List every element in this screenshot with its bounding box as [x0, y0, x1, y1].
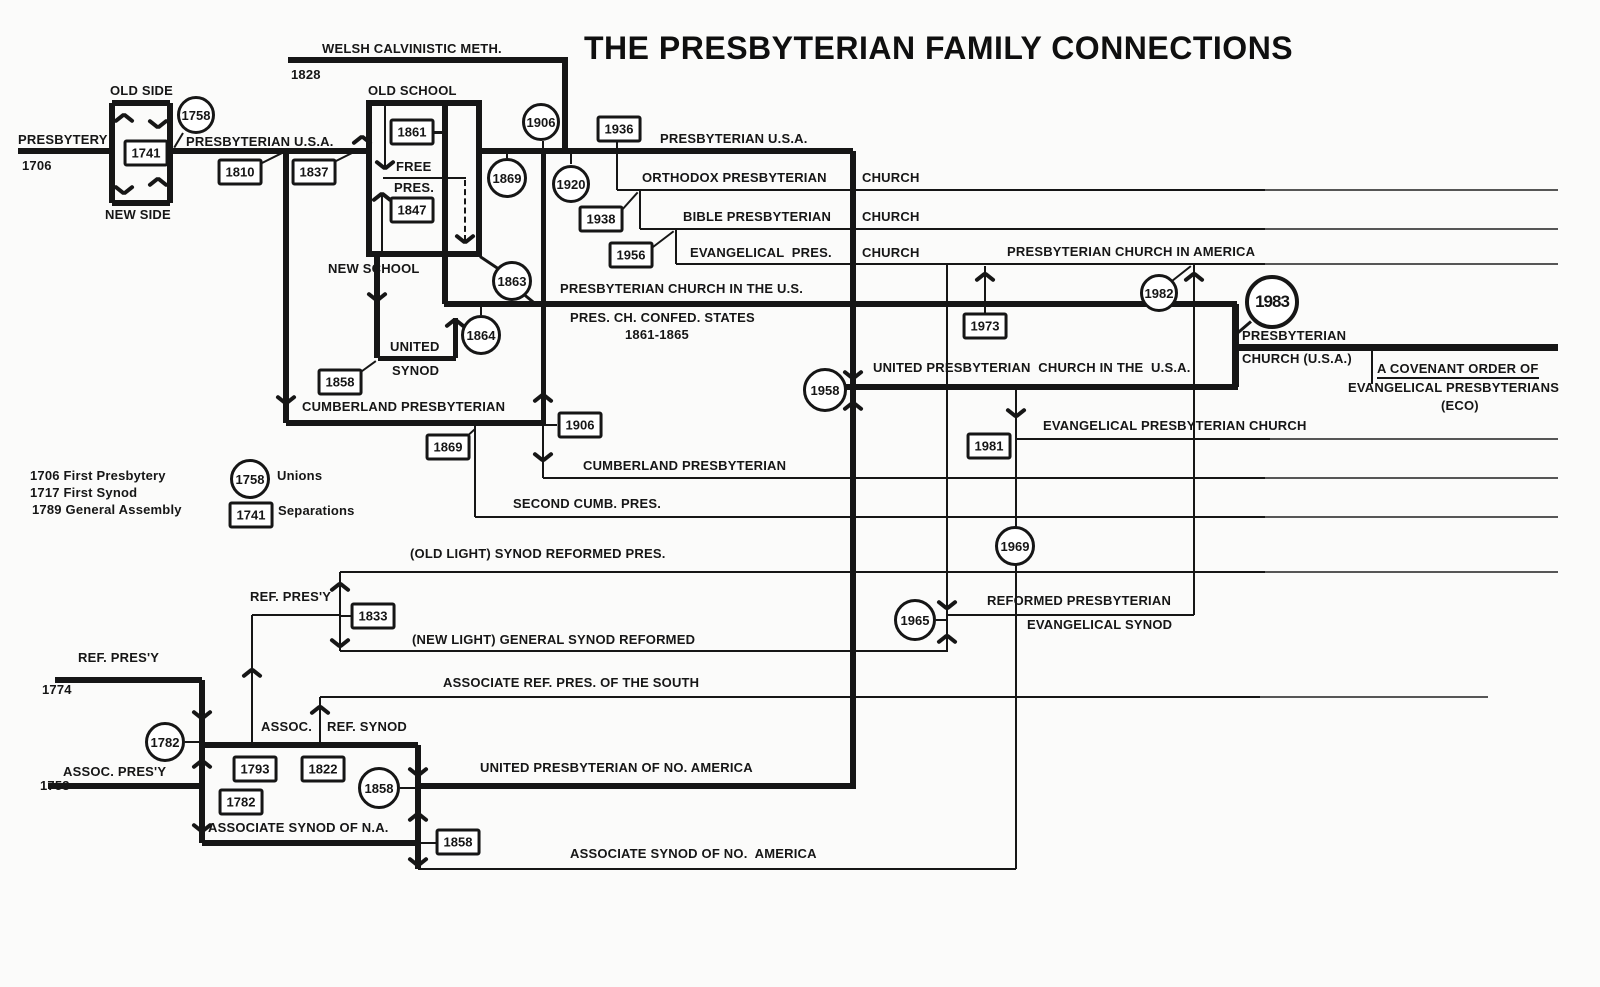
arrow-ars-left-down-bottom — [192, 822, 212, 835]
line-oldside-top — [112, 100, 170, 106]
arrow-ars-right-up — [408, 810, 428, 823]
arrow-new-school-down — [367, 291, 387, 304]
line-ep-drop — [675, 229, 677, 264]
line-orthodox-line — [617, 189, 1265, 191]
line-assoc-presy-line — [48, 783, 202, 789]
line-diag-1758 — [173, 132, 184, 148]
label-legend-1717: 1717 First Synod — [30, 486, 137, 500]
line-oldschool-left — [366, 103, 372, 254]
label-legend-1789: 1789 General Assembly — [32, 503, 182, 517]
arrow-stroke — [122, 184, 135, 195]
line-upna-line — [418, 783, 856, 789]
arrow-stroke — [541, 451, 554, 462]
label-pcusa-line1: PRESBYTERIAN — [1242, 329, 1346, 343]
label-epc: EVANGELICAL PRESBYTERIAN CHURCH — [1043, 419, 1307, 433]
line-second-cumb-faded — [1265, 516, 1558, 518]
label-legend-1706: 1706 First Presbytery — [30, 469, 166, 483]
line-welsh-line — [288, 57, 568, 63]
legend-separation-1741: 1741 — [229, 502, 274, 529]
label-church-2: CHURCH — [862, 210, 920, 224]
line-ars-right — [415, 745, 421, 869]
separation-1858-assoc-synod: 1858 — [436, 829, 481, 856]
arrow-stroke — [851, 400, 864, 411]
line-epc-faded — [1270, 438, 1558, 440]
union-1965: 1965 — [894, 599, 936, 641]
arrow-oldside-split-down — [114, 184, 134, 197]
line-free-dashed — [464, 180, 466, 241]
label-eco-line1: A COVENANT ORDER OF — [1377, 362, 1539, 379]
arrow-stroke — [945, 599, 958, 610]
line-pcus-line — [444, 301, 1237, 307]
arrow-free-end-down — [455, 233, 475, 246]
label-arp-south: ASSOCIATE REF. PRES. OF THE SOUTH — [443, 676, 699, 690]
line-reunion-1983 — [1232, 304, 1239, 387]
line-cumberland-line — [286, 420, 546, 426]
line-oldschool-bottom — [366, 251, 482, 257]
separation-1861: 1861 — [390, 119, 435, 146]
label-cumberland-2: CUMBERLAND PRESBYTERIAN — [583, 459, 786, 473]
line-welsh-drop — [562, 60, 568, 151]
arrow-stroke — [383, 159, 396, 170]
line-new-light-line — [340, 650, 948, 652]
label-evangelical-pres: EVANGELICAL PRES. — [690, 246, 832, 260]
separation-1973: 1973 — [963, 313, 1008, 340]
label-date-1753: 1753 — [40, 779, 70, 793]
arrow-split-1833-up — [330, 580, 350, 593]
label-date-1774: 1774 — [42, 683, 72, 697]
line-box-1936-drop — [616, 140, 618, 190]
arrow-stroke — [416, 766, 429, 777]
line-orthodox-faded — [1265, 189, 1558, 191]
line-ref-presy-rise — [251, 615, 253, 745]
arrow-stroke — [1014, 407, 1027, 418]
separation-1837: 1837 — [292, 159, 337, 186]
line-stub-1920-circle — [570, 151, 572, 164]
arrow-stroke — [338, 637, 351, 648]
arrow-oldside-split-up — [114, 111, 134, 124]
line-arp-south-faded — [1260, 696, 1488, 698]
label-united: UNITED — [390, 340, 440, 354]
line-rp-merge-column — [946, 264, 948, 651]
label-new-light: (NEW LIGHT) GENERAL SYNOD REFORMED — [412, 633, 695, 647]
separation-1906: 1906 — [558, 412, 603, 439]
label-ref-synod-word: REF. SYNOD — [327, 720, 407, 734]
label-date-1706: 1706 — [22, 159, 52, 173]
arrow-ars-right-down-top — [408, 766, 428, 779]
arrow-stroke — [851, 369, 864, 380]
arrow-stroke — [541, 392, 554, 403]
line-pcusa-line — [1232, 344, 1558, 351]
separation-1858-united-synod: 1858 — [318, 369, 363, 396]
label-confed-states: PRES. CH. CONFED. STATES — [570, 311, 755, 325]
arrow-cumberland-cont-down — [533, 451, 553, 464]
line-presbytery-line — [18, 148, 112, 154]
arrow-stroke — [360, 134, 373, 145]
arrow-free-split-down — [375, 159, 395, 172]
separation-1810: 1810 — [218, 159, 263, 186]
arrow-stroke — [122, 112, 135, 123]
label-date-1828: 1828 — [291, 68, 321, 82]
arrow-cumberland-1906-up — [533, 391, 553, 404]
line-second-cumb-drop — [474, 423, 476, 517]
label-new-school: NEW SCHOOL — [328, 262, 420, 276]
label-church-1: CHURCH — [862, 171, 920, 185]
separation-1822: 1822 — [301, 756, 346, 783]
line-oldschool-inner — [442, 103, 448, 304]
label-old-light: (OLD LIGHT) SYNOD REFORMED PRES. — [410, 547, 666, 561]
label-pcusa-line2: CHURCH (U.S.A.) — [1242, 352, 1352, 366]
arrow-stroke — [416, 856, 429, 867]
arrow-stroke — [463, 233, 476, 244]
line-bible-drop — [639, 190, 641, 229]
line-old-light-line — [340, 571, 1265, 573]
label-presbyterian-usa-left: PRESBYTERIAN U.S.A. — [186, 135, 334, 149]
line-stub-1906-circle — [542, 141, 544, 151]
arrow-stroke — [983, 271, 996, 282]
label-orthodox-presbyterian: ORTHODOX PRESBYTERIAN — [642, 171, 827, 185]
label-confed-years: 1861-1865 — [625, 328, 689, 342]
arrow-upna-1958-up — [843, 399, 863, 412]
arrow-stroke — [416, 811, 429, 822]
label-presbyterian-usa-right: PRESBYTERIAN U.S.A. — [660, 132, 808, 146]
separation-1741: 1741 — [124, 140, 169, 167]
diagram-canvas: THE PRESBYTERIAN FAMILY CONNECTIONS WELS… — [0, 0, 1600, 987]
label-assoc-word: ASSOC. — [261, 720, 312, 734]
line-main-line-right — [479, 148, 853, 154]
arrow-pcusa-1958-down — [843, 369, 863, 382]
label-assoc-synod-noa: ASSOCIATE SYNOD OF NO. AMERICA — [570, 847, 817, 861]
separation-1847: 1847 — [390, 197, 435, 224]
union-1758: 1758 — [177, 96, 215, 134]
union-1958: 1958 — [803, 368, 847, 412]
line-cumb-1906-rise — [541, 151, 546, 423]
label-bible-presbyterian: BIBLE PRESBYTERIAN — [683, 210, 831, 224]
label-pca: PRESBYTERIAN CHURCH IN AMERICA — [1007, 245, 1255, 259]
line-ref-presy-line — [252, 614, 341, 616]
union-1863: 1863 — [492, 261, 532, 301]
union-1969: 1969 — [995, 526, 1035, 566]
union-1869: 1869 — [487, 158, 527, 198]
arrow-oldside-join-down — [148, 118, 168, 131]
arrow-stroke — [156, 118, 169, 129]
legend-union-1758: 1758 — [230, 459, 270, 499]
arrow-stroke — [318, 704, 331, 715]
arrow-ars-right-down-bottom — [408, 856, 428, 869]
label-new-side: NEW SIDE — [105, 208, 171, 222]
label-upna: UNITED PRESBYTERIAN OF NO. AMERICA — [480, 761, 753, 775]
line-eco-bracket — [1371, 349, 1373, 384]
separation-1833: 1833 — [351, 603, 396, 630]
line-upcusa-line — [843, 384, 1238, 390]
label-legend-separations: Separations — [278, 504, 355, 518]
separation-1782: 1782 — [219, 789, 264, 816]
separation-1938: 1938 — [579, 206, 624, 233]
arrow-stroke — [338, 581, 351, 592]
arrow-stroke — [200, 758, 213, 769]
label-synod-word: SYNOD — [392, 364, 439, 378]
label-rpes-line2: EVANGELICAL SYNOD — [1027, 618, 1172, 632]
line-assoc-1969-column — [1015, 387, 1017, 869]
arrow-stroke — [1192, 271, 1205, 282]
line-cumberland-drop — [283, 151, 289, 423]
label-cumberland-1: CUMBERLAND PRESBYTERIAN — [302, 400, 505, 414]
arrow-stroke — [156, 176, 169, 187]
line-united-synod-line — [378, 356, 456, 361]
arrow-ref-presy-up — [242, 666, 262, 679]
union-1920: 1920 — [552, 165, 590, 203]
line-cumberland-cont-faded — [1265, 477, 1558, 479]
label-assoc-synod-na: ASSOCIATE SYNOD OF N.A. — [208, 821, 389, 835]
arrow-split-1833-down — [330, 637, 350, 650]
line-bible-line — [640, 228, 1265, 230]
arrow-rpes-1982-up — [1184, 270, 1204, 283]
line-arp-south-line — [320, 696, 1260, 698]
page-title: THE PRESBYTERIAN FAMILY CONNECTIONS — [584, 30, 1293, 67]
label-eco-line2: EVANGELICAL PRESBYTERIANS — [1348, 381, 1559, 395]
union-1782: 1782 — [145, 722, 185, 762]
arrow-rp-merge-down — [937, 599, 957, 612]
line-oldschool-right — [476, 103, 482, 254]
arrow-epc-1981-down — [1006, 407, 1026, 420]
label-eco-line3: (ECO) — [1441, 399, 1479, 413]
arrow-ars-left-down-top — [192, 709, 212, 722]
union-1864: 1864 — [461, 315, 501, 355]
separation-1793: 1793 — [233, 756, 278, 783]
arrow-oldschool-entry-up — [352, 133, 372, 146]
line-old-light-faded — [1265, 571, 1558, 573]
arrow-ars-left-up — [192, 757, 212, 770]
arrow-stroke — [250, 667, 263, 678]
line-rpes-1982-rise — [1193, 263, 1195, 615]
line-ars-bottom — [202, 840, 418, 846]
label-legend-unions: Unions — [277, 469, 322, 483]
label-free: FREE — [396, 160, 431, 174]
arrow-pca-1973-up — [975, 270, 995, 283]
line-main-trunk-drop — [850, 151, 856, 786]
label-ref-presy-1833: REF. PRES'Y — [250, 590, 331, 604]
separation-1956: 1956 — [609, 242, 654, 269]
union-1983: 1983 — [1245, 275, 1299, 329]
label-second-cumb: SECOND CUMB. PRES. — [513, 497, 661, 511]
label-rpes-line1: REFORMED PRESBYTERIAN — [987, 594, 1171, 608]
arrow-oldside-join-up — [148, 175, 168, 188]
label-assoc-presy: ASSOC. PRES'Y — [63, 765, 166, 779]
line-stub-1864-circle — [480, 304, 482, 315]
label-old-school: OLD SCHOOL — [368, 84, 457, 98]
line-bible-faded — [1265, 228, 1558, 230]
line-ref-presy-1774-line — [55, 677, 202, 683]
line-cumberland-cont-line — [543, 477, 1265, 479]
label-presbytery: PRESBYTERY — [18, 133, 108, 147]
arrow-stroke — [200, 709, 213, 720]
label-pcus: PRESBYTERIAN CHURCH IN THE U.S. — [560, 282, 803, 296]
line-ep-pca-faded — [1265, 263, 1558, 265]
line-asna-line — [418, 868, 1016, 870]
label-church-3: CHURCH — [862, 246, 920, 260]
line-ars-top — [202, 742, 418, 748]
line-rpes-line — [947, 614, 1194, 616]
separation-1869: 1869 — [426, 434, 471, 461]
arrow-arp-up — [310, 703, 330, 716]
label-upcusa: UNITED PRESBYTERIAN CHURCH IN THE U.S.A. — [873, 361, 1191, 375]
union-1858: 1858 — [358, 767, 400, 809]
label-old-side: OLD SIDE — [110, 84, 173, 98]
label-welsh-calvinistic-meth: WELSH CALVINISTIC METH. — [322, 42, 502, 56]
line-free-line — [383, 177, 466, 179]
union-1982: 1982 — [1140, 274, 1178, 312]
arrow-stroke — [200, 822, 213, 833]
line-second-cumb-line — [475, 516, 1265, 518]
line-stub-1906-box — [543, 424, 557, 426]
arrow-rp-merge-up — [937, 632, 957, 645]
label-ref-presy-1774: REF. PRES'Y — [78, 651, 159, 665]
line-stub-1869-circle — [506, 151, 508, 158]
line-epc-line — [1016, 438, 1270, 440]
line-oldside-bottom — [112, 200, 170, 206]
separation-1981: 1981 — [967, 433, 1012, 460]
union-1906: 1906 — [522, 103, 560, 141]
separation-1936: 1936 — [597, 116, 642, 143]
line-ep-pca-line — [676, 263, 1265, 265]
arrow-stroke — [945, 633, 958, 644]
label-pres-abbrev: PRES. — [394, 181, 434, 195]
arrow-stroke — [375, 291, 388, 302]
arrow-cumberland-split-down — [276, 394, 296, 407]
line-diag-1956 — [652, 230, 674, 248]
arrow-stroke — [284, 394, 297, 405]
